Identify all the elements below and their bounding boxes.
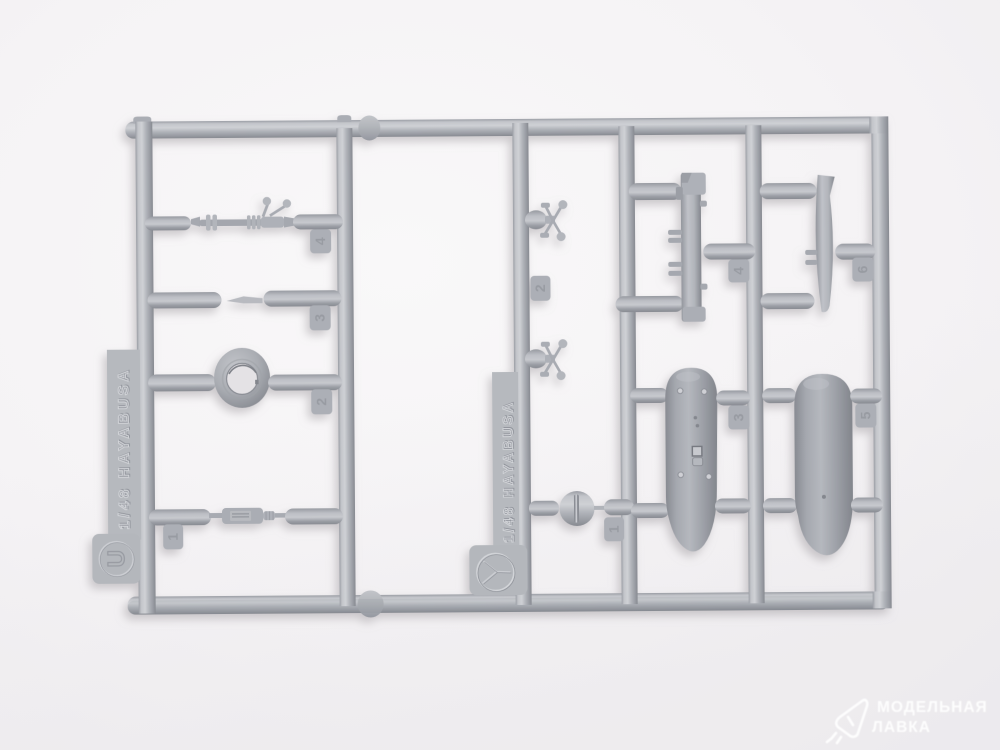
svg-text:1/48 HAYABUSA: 1/48 HAYABUSA bbox=[115, 367, 133, 530]
svg-text:6: 6 bbox=[854, 265, 870, 273]
svg-text:ЛАВКА: ЛАВКА bbox=[872, 719, 931, 736]
svg-text:2: 2 bbox=[313, 398, 329, 406]
svg-text:3: 3 bbox=[730, 413, 746, 421]
svg-text:3: 3 bbox=[312, 314, 328, 322]
svg-text:4: 4 bbox=[312, 237, 328, 245]
svg-text:1: 1 bbox=[606, 525, 622, 533]
svg-text:4: 4 bbox=[730, 267, 746, 275]
svg-text:2: 2 bbox=[532, 284, 548, 292]
svg-text:5: 5 bbox=[857, 411, 873, 419]
svg-text:U: U bbox=[103, 550, 130, 568]
svg-text:МОДЕЛЬНАЯ: МОДЕЛЬНАЯ bbox=[877, 699, 988, 716]
svg-text:1: 1 bbox=[165, 533, 181, 541]
svg-text:1/48 HAYABUSA: 1/48 HAYABUSA bbox=[500, 400, 516, 543]
